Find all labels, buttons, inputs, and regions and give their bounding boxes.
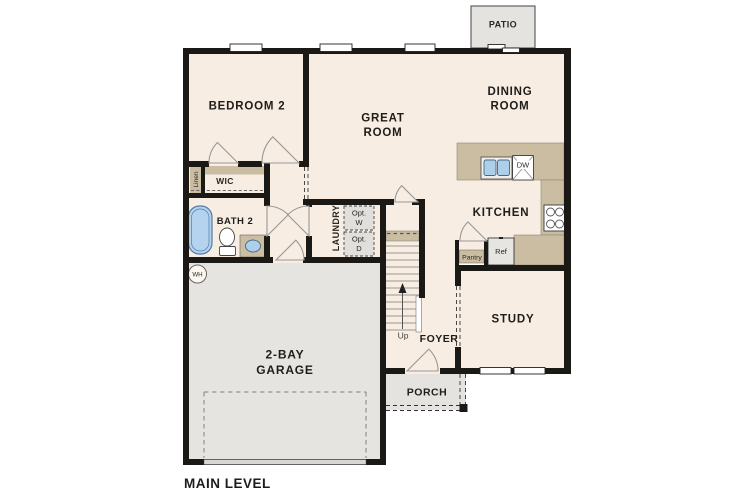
dishwasher: DW [513,156,534,181]
great-room-label-1: GREAT [361,113,404,125]
dishwasher-label: DW [517,161,530,170]
dining-room-label-2: ROOM [491,101,530,113]
porch-post [460,404,468,412]
dining-room-label-1: DINING [487,86,532,98]
kitchen-label: KITCHEN [473,207,530,219]
great-room-label-2: ROOM [364,127,403,139]
porch-label: PORCH [407,387,447,399]
window [230,44,262,52]
kitchen-sink [481,157,512,179]
opt-d-line1: Opt. [352,235,366,244]
patio-label: PATIO [489,20,517,30]
optional-washer: Opt. W [344,206,374,230]
garage-label-2: GARAGE [256,363,313,377]
opt-w-line2: W [355,218,363,227]
opt-d-line2: D [356,244,362,253]
bath2-label: BATH 2 [217,216,254,227]
laundry-label: LAUNDRY [331,205,341,251]
floor-plan-page: DW Ref Pantry WH Op [0,0,750,500]
linen-label: Linen [193,171,200,187]
opt-w-line1: Opt. [352,209,366,218]
bathtub [189,206,213,254]
window [320,44,352,52]
optional-dryer: Opt. D [344,232,374,256]
garage-door-slab [204,460,366,465]
range-4-burner [544,205,565,231]
floor-plan: DW Ref Pantry WH Op [0,0,750,500]
stair-handrail [416,296,422,332]
up-label: Up [398,331,409,341]
water-heater-label: WH [192,272,202,279]
toilet [220,228,236,256]
refrigerator: Ref [488,238,514,265]
garage-label-1: 2-BAY [266,348,305,362]
study-label: STUDY [492,314,535,326]
closet-shelf [386,231,419,241]
window [480,368,511,375]
plan-title: MAIN LEVEL [184,476,271,491]
water-heater: WH [189,265,207,283]
window [405,44,435,52]
refrigerator-label: Ref [495,247,508,256]
vanity-sink [240,235,266,257]
pantry-label: Pantry [462,255,482,262]
foyer-label: FOYER [420,333,459,345]
pantry: Pantry [460,250,485,263]
bedroom2-label: BEDROOM 2 [209,101,286,113]
wic-label: WIC [216,176,234,186]
window [514,368,545,375]
